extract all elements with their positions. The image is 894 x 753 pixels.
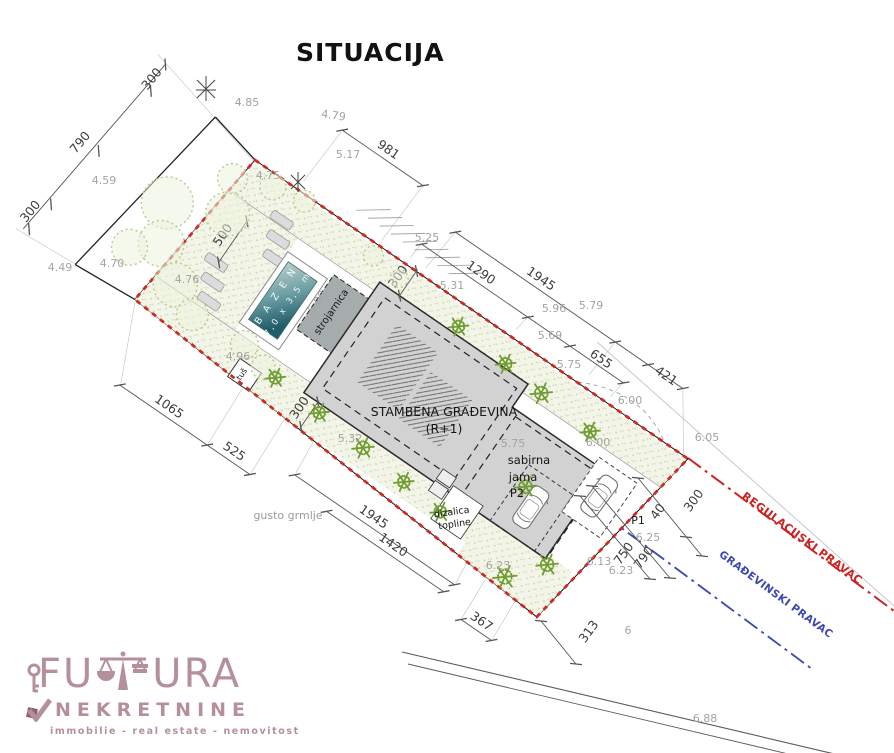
elev-label: 6.23 [609,564,634,577]
dim-label: 40 [647,500,669,522]
dim-label: 981 [374,136,402,162]
elev-label: 5.25 [415,231,440,244]
elev-label: 6.05 [695,431,720,444]
dim-label: 300 [680,486,706,514]
check-icon [26,698,52,722]
elev-label: 6.25 [636,531,661,544]
logo-row-futura: FU URA [26,650,300,694]
dim-label: 1420 [376,529,411,559]
name-label: STAMBENA GRAĐEVINA [371,404,518,419]
road-edge-line [402,652,894,753]
scales-icon [96,650,150,692]
muted-label: gusto grmlje [253,509,322,522]
dim-label: 1945 [524,263,559,293]
name-label: sabirna [508,453,550,467]
elev-label: 6.23 [486,559,511,572]
dim-label: 313 [575,617,601,645]
logo: FU URA NEKRETNINE immobilie - real estat… [26,650,300,737]
blue-label: GRAĐEVINSKI PRAVAC [717,549,835,641]
elev-label: 4.85 [235,96,260,109]
dim-label: 300 [138,65,165,93]
name-label: (R+1) [426,421,463,436]
road-edge-line [408,664,894,753]
elev-label: 6.00 [586,436,611,449]
elev-label: 5.79 [579,299,604,312]
logo-subtitle: NEKRETNINE [55,699,251,721]
elev-label: 4.49 [48,261,73,274]
elev-label: 6 [625,624,632,637]
name-label: P1 [631,514,645,527]
name-label: P2 [510,486,524,500]
elev-label: 4.79 [320,107,346,123]
elev-label: 5.32 [338,432,363,445]
elev-label: 4.70 [100,257,125,270]
logo-text-end: URA [152,654,241,694]
red-label: REGULACIJSKI PRAVAC [739,489,864,587]
dim-label: 367 [468,608,496,634]
elev-label: 6.00 [618,394,643,407]
logo-row-nekretnine: NEKRETNINE [48,698,300,722]
dim-label: 655 [587,346,615,372]
dim-label: 1945 [357,501,392,531]
dim-label: 1290 [464,257,499,287]
elev-label: 6.13 [587,555,612,568]
dim-label: 300 [17,197,44,225]
logo-tagline: immobilie - real estate - nemovitost [50,726,300,737]
dim-label: 525 [220,438,248,464]
dimension-line [114,379,256,480]
elev-label: 5.17 [336,148,361,161]
elev-label: 5.75 [557,358,582,371]
logo-text-start: FU [38,654,94,694]
elev-label: 4.75 [256,169,281,182]
site-plan-svg: 9811290194565542130079030050030030019451… [0,0,894,753]
elev-label: 5.69 [538,329,563,342]
survey-mark [196,76,216,101]
elev-label: 6.88 [693,712,718,725]
elev-label: 4.59 [92,174,117,187]
elev-label: 5.75 [501,437,526,450]
dimension-line [535,620,582,664]
elev-label: 5.96 [542,302,567,315]
elev-label: 4.96 [226,350,251,363]
dim-label: 1065 [152,391,187,421]
name-label: jama [508,470,538,484]
elev-label: 5.31 [440,279,465,292]
elev-label: 4.76 [175,273,200,286]
